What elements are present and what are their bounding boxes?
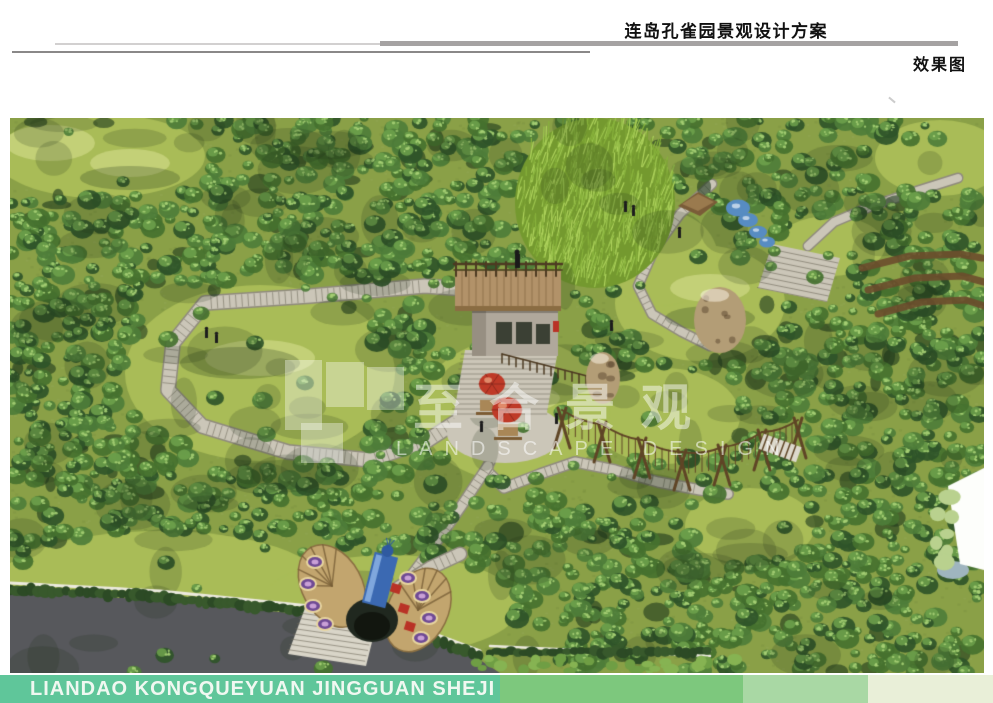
page-subtitle: 效果图 bbox=[913, 51, 967, 75]
footer-bar: LIANDAO KONGQUEYUAN JINGGUAN SHEJI FANGA… bbox=[0, 675, 993, 703]
footer-segment-1: LIANDAO KONGQUEYUAN JINGGUAN SHEJI FANGA… bbox=[0, 675, 500, 703]
render-canvas bbox=[10, 118, 984, 673]
header-rule-dark bbox=[12, 51, 590, 53]
header-rule-light bbox=[55, 43, 380, 45]
footer-segment-3 bbox=[743, 675, 868, 703]
footer-segment-2 bbox=[500, 675, 743, 703]
presentation-page: 连岛孔雀园景观设计方案 效果图 至合景观 LANDSCAPE DESIGN LI… bbox=[0, 0, 993, 703]
page-title: 连岛孔雀园景观设计方案 bbox=[625, 17, 829, 42]
header-rule-thick bbox=[380, 41, 958, 46]
footer-segment-4 bbox=[868, 675, 993, 703]
render-image: 至合景观 LANDSCAPE DESIGN bbox=[10, 118, 984, 673]
stray-mark bbox=[888, 97, 895, 104]
